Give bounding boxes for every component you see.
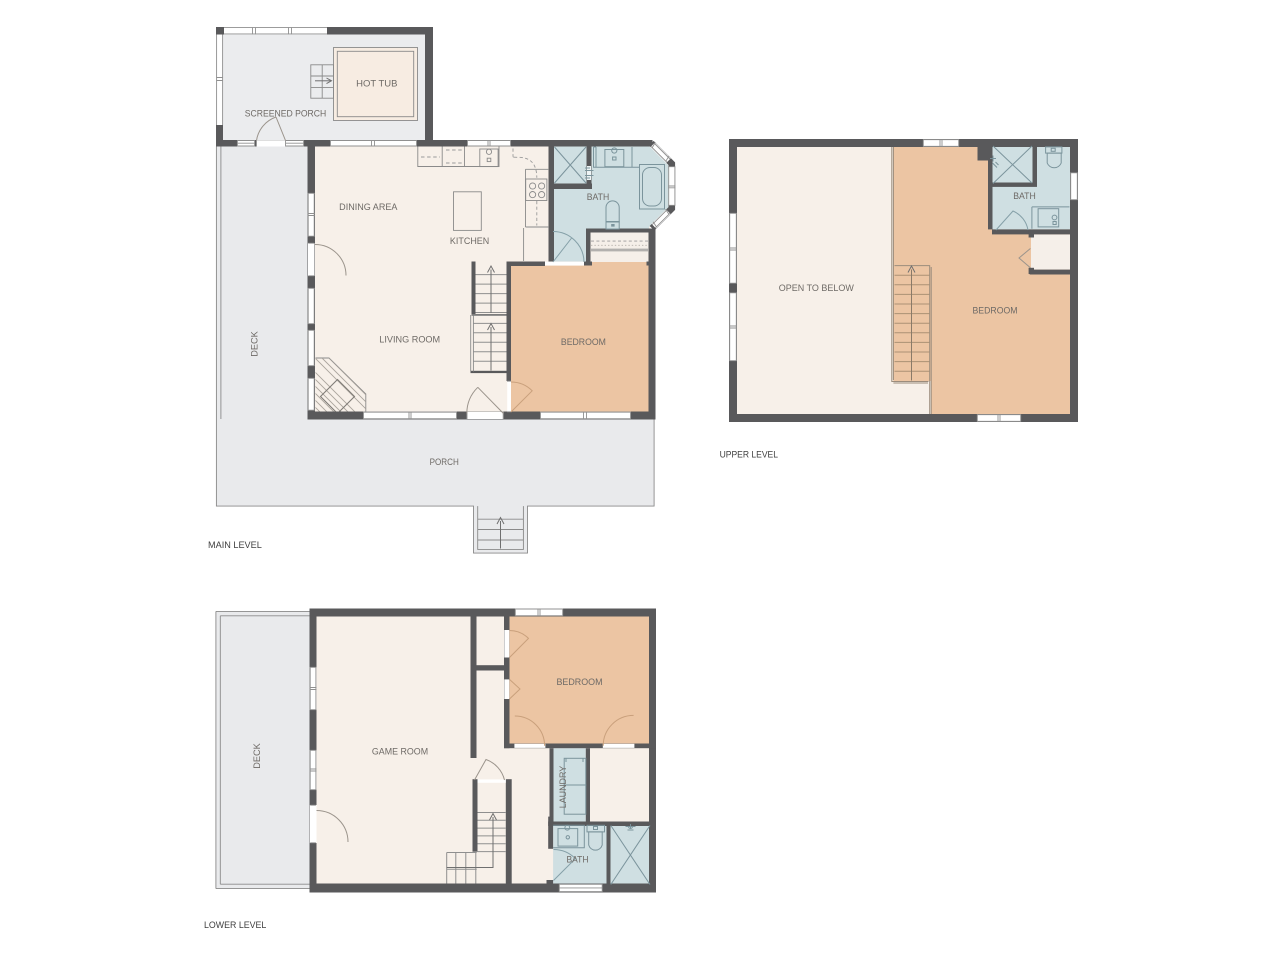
svg-text:BATH: BATH [567,855,589,865]
svg-text:HOT TUB: HOT TUB [356,79,397,89]
svg-text:BEDROOM: BEDROOM [557,677,603,687]
svg-text:DINING AREA: DINING AREA [339,202,397,212]
svg-text:LOWER LEVEL: LOWER LEVEL [204,919,266,930]
svg-text:OPEN TO BELOW: OPEN TO BELOW [779,283,855,293]
svg-text:LAUNDRY: LAUNDRY [558,766,568,809]
svg-text:SCREENED PORCH: SCREENED PORCH [245,109,327,119]
svg-text:BATH: BATH [587,192,610,202]
svg-text:DECK: DECK [252,743,262,769]
svg-text:BEDROOM: BEDROOM [973,306,1018,316]
svg-text:LIVING ROOM: LIVING ROOM [379,335,440,345]
svg-text:BATH: BATH [1013,191,1036,201]
svg-text:UPPER LEVEL: UPPER LEVEL [720,449,778,460]
svg-text:KITCHEN: KITCHEN [450,236,489,246]
svg-text:DECK: DECK [250,331,260,357]
svg-text:BEDROOM: BEDROOM [561,337,606,347]
svg-text:MAIN LEVEL: MAIN LEVEL [208,539,262,550]
svg-text:PORCH: PORCH [430,457,459,467]
svg-text:GAME ROOM: GAME ROOM [372,746,428,756]
